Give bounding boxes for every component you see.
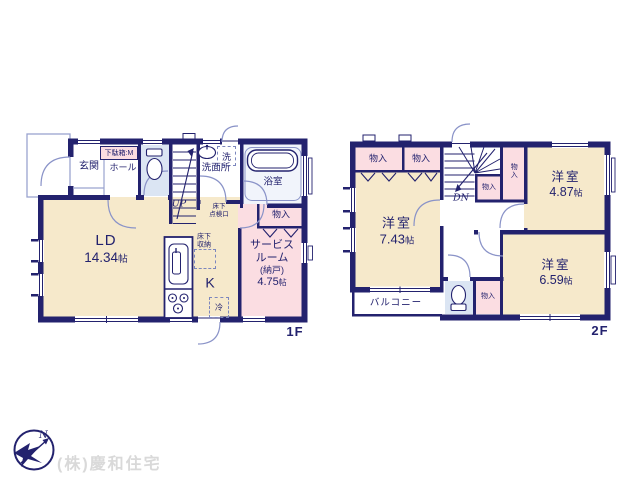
floorplan-page: N 玄関 下駄箱:M ホール 洗面所 洗 浴室 UP 床下 点検口 物入 サービ… xyxy=(0,0,640,480)
room-label-487: 洋室 4.87帖 xyxy=(549,170,582,200)
room-label-659: 洋室 6.59帖 xyxy=(539,258,572,288)
hatch-line1: 床下 xyxy=(209,203,229,211)
underfloor-hatch-label: 床下 点検口 xyxy=(209,203,229,219)
service-area: 4.75帖 xyxy=(250,276,294,289)
sink-icon xyxy=(199,145,216,159)
toilet-icon-1f xyxy=(147,149,163,180)
underfloor-storage-box xyxy=(194,249,216,269)
room-743-area-value: 7.43 xyxy=(380,231,405,246)
service-area-value: 4.75 xyxy=(257,276,278,288)
closet-stairs-side-label: 物入 xyxy=(509,163,517,179)
room-743-area-unit: 帖 xyxy=(405,235,414,245)
room-743-area: 7.43帖 xyxy=(380,231,415,247)
room-label-service: サービス ルーム (納戸) 4.75帖 xyxy=(250,239,294,289)
compass-north-label: N xyxy=(38,430,49,441)
ld-area: 14.34帖 xyxy=(84,250,128,266)
compass-icon: N xyxy=(14,430,54,470)
service-line1: サービス xyxy=(250,239,294,252)
closet-top-left-label: 物入 xyxy=(369,154,387,165)
closet-label-1f: 物入 xyxy=(272,210,290,221)
fridge-box: 冷 xyxy=(209,297,229,318)
room-659-area-unit: 帖 xyxy=(564,276,573,286)
room-487-area: 4.87帖 xyxy=(549,185,582,200)
room-label-ld: LD 14.34帖 xyxy=(84,232,128,266)
room-659-area-value: 6.59 xyxy=(539,273,563,287)
room-label-washroom: 洗面所 xyxy=(202,162,231,173)
ld-area-unit: 帖 xyxy=(118,254,128,265)
room-487-area-unit: 帖 xyxy=(574,188,583,198)
shoe-box-tag: 下駄箱:M xyxy=(100,146,138,160)
floor-storage-line2: 収納 xyxy=(197,242,211,250)
underfloor-storage-label: 床下 収納 xyxy=(197,234,211,251)
closet-bottom-label: 物入 xyxy=(481,293,495,301)
service-line3: (納戸) xyxy=(250,265,294,276)
room-label-bath: 浴室 xyxy=(263,176,282,187)
room-label-743: 洋室 7.43帖 xyxy=(380,215,415,246)
company-watermark: (株)慶和住宅 xyxy=(57,450,162,474)
room-659-name: 洋室 xyxy=(539,258,572,273)
stairs-dn-label: DN xyxy=(453,192,469,203)
stairs-up-label: UP xyxy=(172,198,186,209)
toilet-icon-2f xyxy=(451,286,466,311)
room-659-area: 6.59帖 xyxy=(539,273,572,288)
porch xyxy=(27,134,70,197)
balcony-label: バルコニー xyxy=(370,297,422,308)
closet-top-right-label: 物入 xyxy=(412,154,430,165)
room-487-area-value: 4.87 xyxy=(549,185,573,199)
room-487-name: 洋室 xyxy=(549,170,582,185)
kitchen-counter xyxy=(165,237,193,318)
hatch-line2: 点検口 xyxy=(209,211,229,219)
floorplan-1f xyxy=(27,126,313,344)
room-label-kitchen: K xyxy=(205,275,214,292)
room-label-hall: ホール xyxy=(109,163,136,174)
floor-label-1f: 1F xyxy=(286,324,303,340)
service-line2: ルーム xyxy=(250,252,294,265)
ld-name: LD xyxy=(84,232,128,250)
floor-label-2f: 2F xyxy=(591,323,608,339)
room-743-name: 洋室 xyxy=(380,215,415,231)
room-label-genkan: 玄関 xyxy=(79,161,99,173)
closet-stairs-label: 物入 xyxy=(482,184,496,192)
ld-area-value: 14.34 xyxy=(84,250,118,265)
service-area-unit: 帖 xyxy=(279,278,287,287)
